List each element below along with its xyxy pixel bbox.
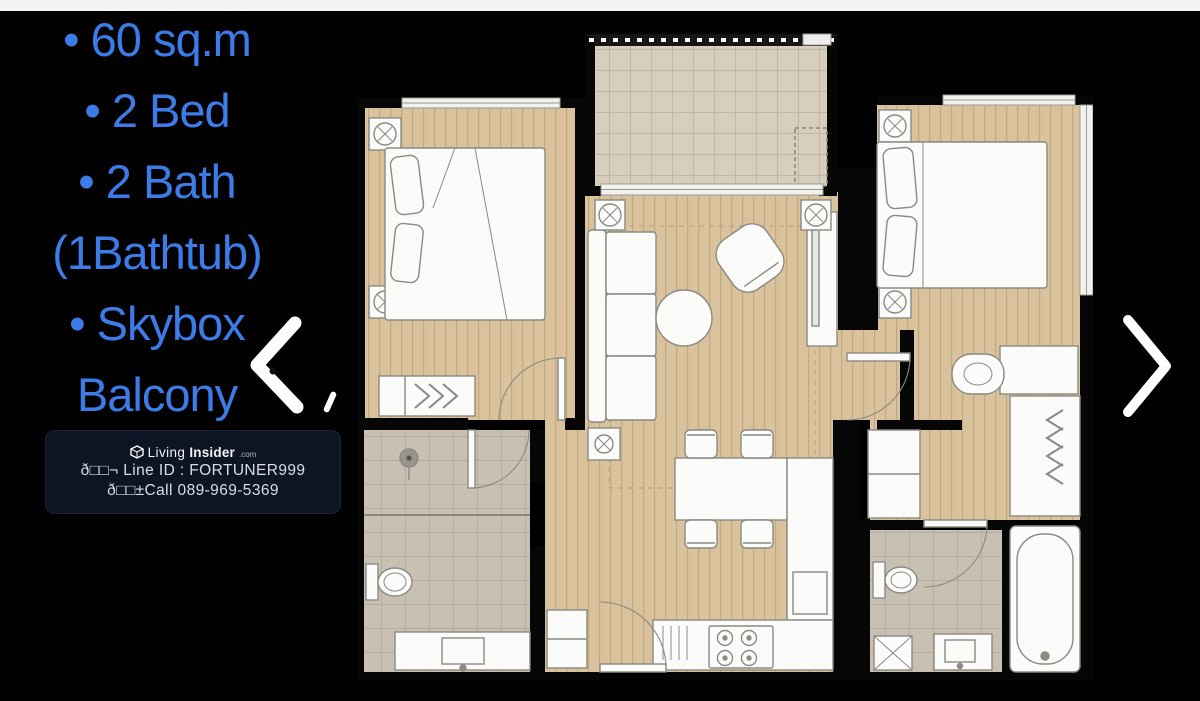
- pillow: [390, 223, 424, 284]
- feature-bathrooms: • 2 Bath: [0, 146, 314, 217]
- balcony-door-panel: [803, 34, 831, 45]
- stove: [709, 626, 773, 668]
- watermark-phone: ð□□±Call 089-969-5369: [107, 481, 279, 500]
- feature-bathtub-note: (1Bathtub): [0, 217, 314, 288]
- arrow-artifact-mark: [323, 391, 337, 414]
- tv-cabinet: [807, 212, 837, 346]
- carousel-next-button[interactable]: [1116, 310, 1180, 422]
- watermark-line-id: ð□□¬ Line ID : FORTUNER999: [81, 461, 306, 480]
- brand-row: LivingInsider.com: [130, 445, 257, 460]
- skybox-balcony-floor: [593, 46, 829, 188]
- chevron-left-icon: [243, 313, 307, 417]
- bedroom2-door-leaf: [847, 353, 910, 361]
- bedroom1-dresser: [379, 376, 475, 416]
- feature-bedrooms: • 2 Bed: [0, 75, 314, 146]
- floor-plan-image: [357, 28, 1093, 680]
- pillow: [882, 215, 917, 277]
- dining-table: [675, 458, 787, 520]
- bathroom1-vanity: [395, 632, 530, 671]
- planter-left: [595, 200, 625, 230]
- watermark-badge: LivingInsider.com ð□□¬ Line ID : FORTUNE…: [45, 430, 341, 514]
- bathroom2-door-leaf: [924, 520, 987, 527]
- carousel-prev-button[interactable]: [243, 313, 307, 417]
- bedroom2-nightstand-top: [879, 110, 911, 142]
- planter-right: [801, 200, 831, 230]
- entry-cabinet: [547, 610, 587, 668]
- corridor-cabinet: [868, 430, 920, 518]
- entrance-door-leaf: [600, 664, 666, 672]
- sofa: [588, 230, 656, 422]
- service-shaft: [874, 636, 912, 670]
- wardrobe: [1010, 396, 1080, 516]
- coffee-table: [656, 290, 712, 346]
- living-insider-logo-icon: [130, 445, 144, 459]
- bedroom1-door-leaf: [558, 358, 565, 420]
- bathroom1-door-leaf: [468, 430, 475, 488]
- bedroom1-nightstand-top: [369, 118, 401, 150]
- brand-word-living: Living: [148, 445, 186, 460]
- brand-tld: .com: [239, 450, 256, 459]
- bedroom2-nightstand-bottom: [879, 286, 911, 318]
- bathtub: [1010, 526, 1080, 672]
- pillow: [882, 147, 917, 209]
- listing-photo-viewer: • 60 sq.m • 2 Bed • 2 Bath (1Bathtub) • …: [0, 0, 1200, 701]
- bathroom2-vanity: [934, 634, 992, 670]
- feature-area: • 60 sq.m: [0, 4, 314, 75]
- brand-word-insider: Insider: [189, 445, 235, 460]
- chevron-right-icon: [1116, 310, 1180, 422]
- sofa-side-table: [588, 428, 620, 460]
